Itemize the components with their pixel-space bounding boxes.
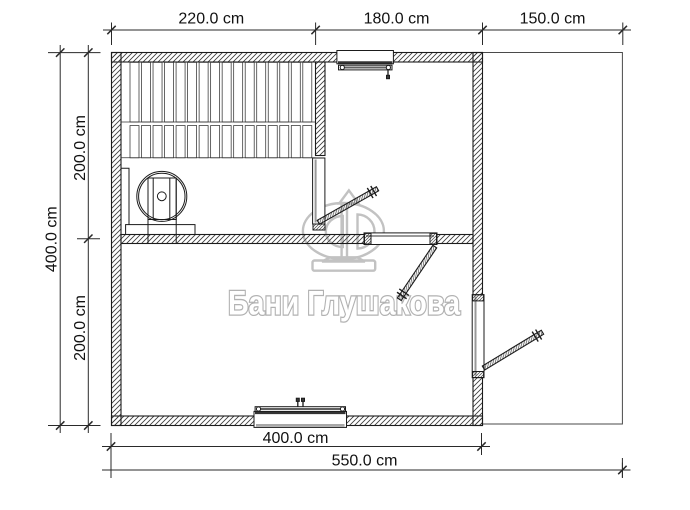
svg-text:400.0 cm: 400.0 cm <box>263 430 329 447</box>
svg-text:180.0 cm: 180.0 cm <box>364 11 430 28</box>
svg-text:400.0 cm: 400.0 cm <box>44 206 61 272</box>
svg-text:200.0 cm: 200.0 cm <box>72 295 89 361</box>
svg-text:200.0 cm: 200.0 cm <box>72 115 89 181</box>
svg-text:Бани Глушакова: Бани Глушакова <box>228 285 461 323</box>
svg-text:550.0 cm: 550.0 cm <box>332 453 398 470</box>
svg-text:220.0 cm: 220.0 cm <box>178 11 244 28</box>
svg-text:150.0 cm: 150.0 cm <box>520 11 586 28</box>
